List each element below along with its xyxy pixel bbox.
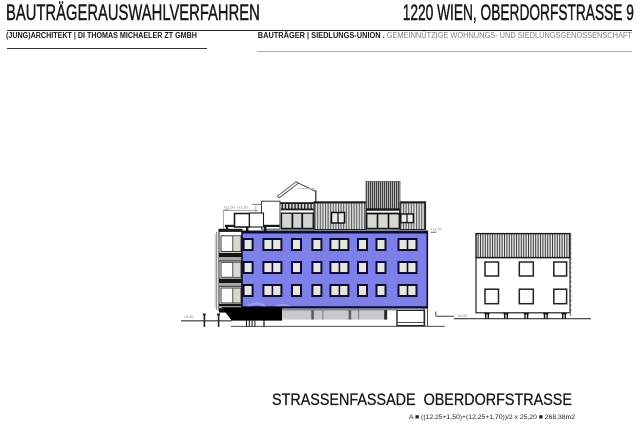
svg-text:±0,00: ±0,00 bbox=[184, 315, 193, 319]
svg-text:+11,70: +11,70 bbox=[431, 228, 442, 232]
svg-text:+12,50 +12,50: +12,50 +12,50 bbox=[224, 206, 248, 210]
svg-text:±0,00: ±0,00 bbox=[458, 314, 467, 318]
